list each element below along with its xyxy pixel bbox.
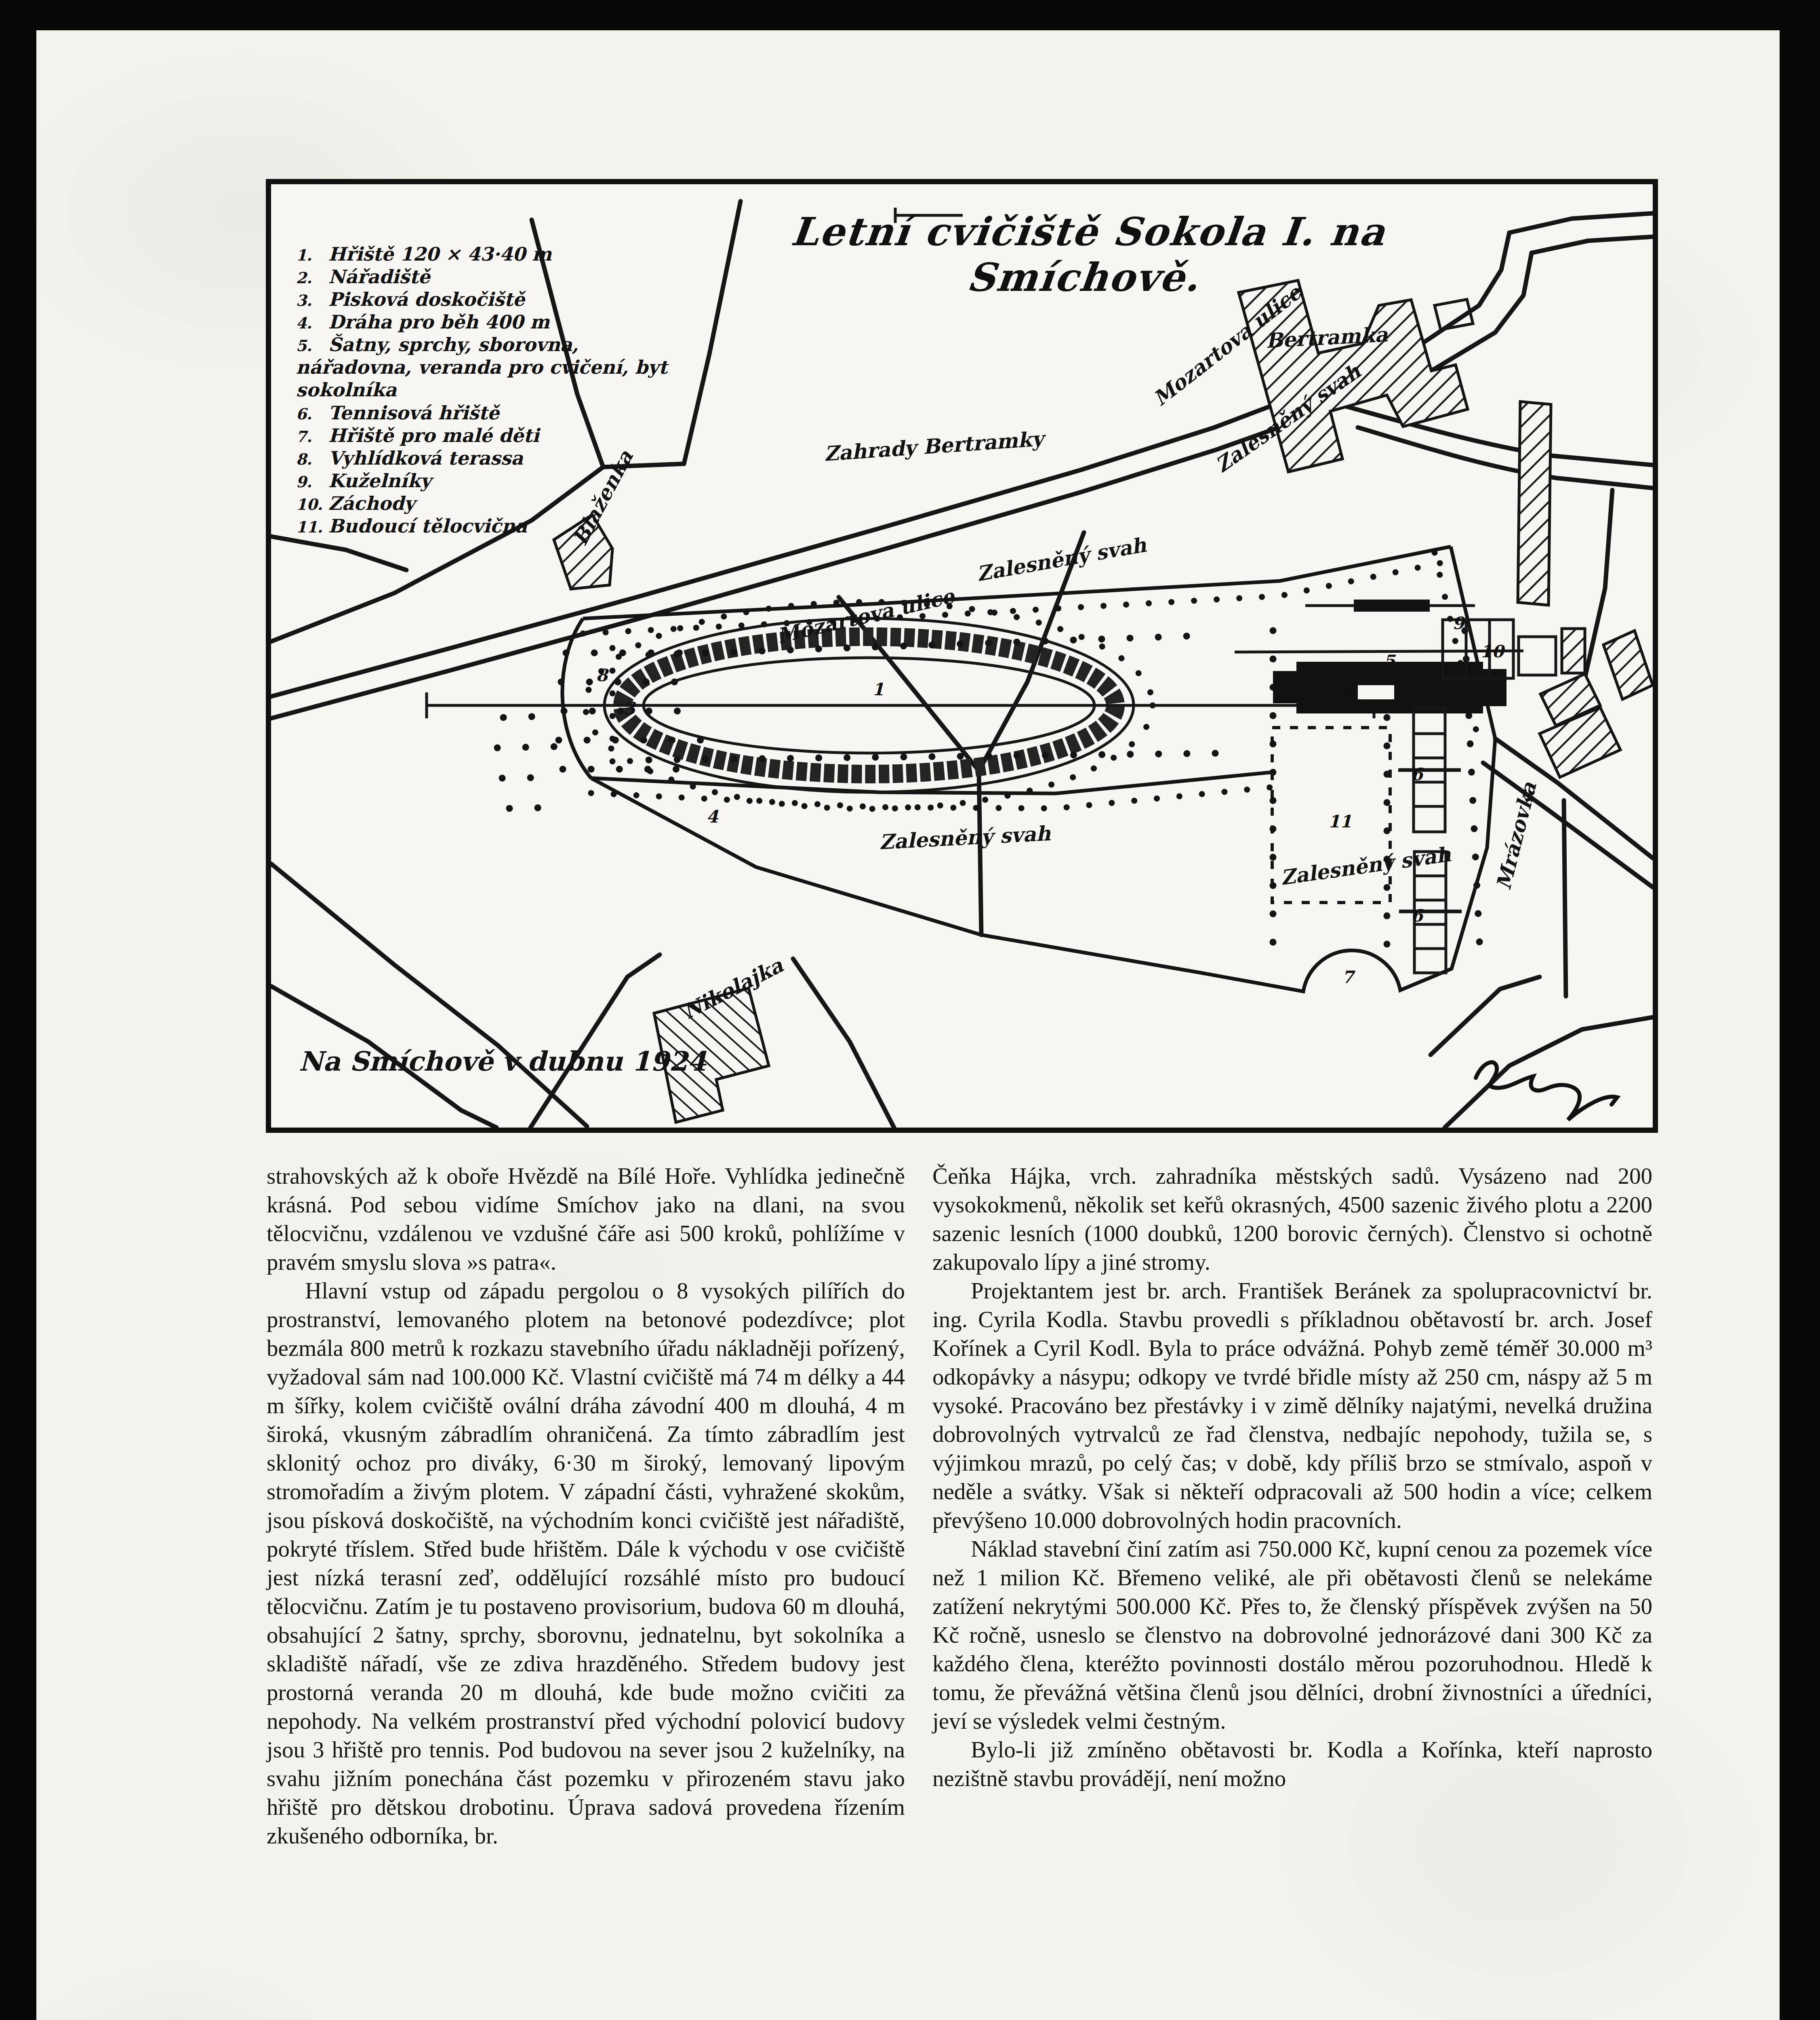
map-marker-4: 4 (706, 807, 718, 827)
legend-num: 1. (296, 246, 328, 265)
map-marker-8: 8 (596, 665, 608, 685)
legend-num: 11. (296, 518, 328, 537)
map-title: Letní cvičiště Sokola I. na Smíchově. (681, 209, 1492, 300)
signature (1476, 1062, 1617, 1120)
map-marker-11: 11 (1328, 812, 1351, 831)
legend-item-6: 6.Tennisová hřiště (296, 402, 676, 424)
legend-num: 6. (296, 405, 328, 423)
article-column-left: strahovských až k oboře Hvězdě na Bílé H… (267, 1161, 905, 1850)
legend-label: Hřiště pro malé děti (328, 425, 539, 446)
legend-num: 10. (296, 495, 328, 514)
legend-item-10: 10.Záchody (296, 492, 676, 515)
scanned-book-page: { "page": { "page_number": "120" }, "map… (0, 0, 1820, 2020)
legend-num: 8. (296, 450, 328, 469)
paragraph: Projektantem jest br. arch. František Be… (932, 1276, 1652, 1534)
legend-label: Dráha pro běh 400 m (328, 311, 550, 333)
legend-num: 4. (296, 314, 328, 332)
paragraph: Čeňka Hájka, vrch. zahradníka městských … (932, 1161, 1652, 1276)
legend-item-11: 11.Budoucí tělocvična (296, 515, 676, 537)
legend-label: Pisková doskočiště (328, 288, 525, 310)
map-legend: 1.Hřiště 120 × 43·40 m 2.Nářadiště 3.Pis… (296, 243, 676, 537)
kuzelniky (1354, 600, 1430, 612)
page-paper: Letní cvičiště Sokola I. na Smíchově. 1.… (36, 30, 1780, 2020)
legend-label: Budoucí tělocvična (328, 515, 527, 537)
legend-item-2: 2.Nářadiště (296, 265, 676, 288)
legend-num: 9. (296, 473, 328, 491)
tennis-courts (1398, 709, 1462, 973)
legend-num: 5. (296, 337, 328, 355)
legend-item-4: 4.Dráha pro běh 400 m (296, 311, 676, 333)
paragraph: Bylo-li již zmíněno obětavosti br. Kodla… (932, 1735, 1652, 1793)
paragraph: strahovských až k oboře Hvězdě na Bílé H… (267, 1161, 905, 1276)
map-marker-10: 10 (1480, 642, 1504, 661)
map-marker-9: 9 (1452, 613, 1464, 633)
legend-item-1: 1.Hřiště 120 × 43·40 m (296, 243, 676, 265)
map-marker-2: 2 (1342, 680, 1354, 699)
legend-label: Záchody (328, 492, 415, 514)
legend-item-5: 5.Šatny, sprchy, sborovna, nářadovna, ve… (296, 333, 676, 401)
legend-label: Tennisová hřiště (328, 402, 499, 424)
site-boundary (562, 547, 1495, 991)
site-plan-figure: Letní cvičiště Sokola I. na Smíchově. 1.… (266, 179, 1658, 1133)
paragraph: Hlavní vstup od západu pergolou o 8 vyso… (267, 1276, 905, 1850)
map-marker-6a: 6 (1411, 764, 1423, 784)
legend-label: Hřiště 120 × 43·40 m (328, 243, 552, 265)
legend-num: 7. (296, 427, 328, 446)
legend-item-7: 7.Hřiště pro malé děti (296, 424, 676, 447)
map-marker-1: 1 (872, 680, 884, 699)
legend-num: 2. (296, 269, 328, 287)
legend-label: Nářadiště (328, 266, 430, 288)
map-marker-5: 5 (1383, 651, 1395, 671)
legend-label: Šatny, sprchy, sborovna, nářadovna, vera… (296, 334, 667, 401)
legend-num: 3. (296, 291, 328, 310)
legend-label: Kuželníky (328, 470, 431, 492)
map-marker-3: 3 (623, 699, 635, 718)
map-marker-6b: 6 (1411, 906, 1423, 926)
map-marker-7: 7 (1342, 967, 1354, 987)
map-caption-date: Na Smíchově v dubnu 1924 (299, 1046, 706, 1077)
legend-label: Vyhlídková terassa (328, 447, 523, 469)
legend-item-3: 3.Pisková doskočiště (296, 288, 676, 311)
article-column-right: Čeňka Hájka, vrch. zahradníka městských … (932, 1161, 1652, 1793)
paragraph: Náklad stavební činí zatím asi 750.000 K… (932, 1534, 1652, 1735)
